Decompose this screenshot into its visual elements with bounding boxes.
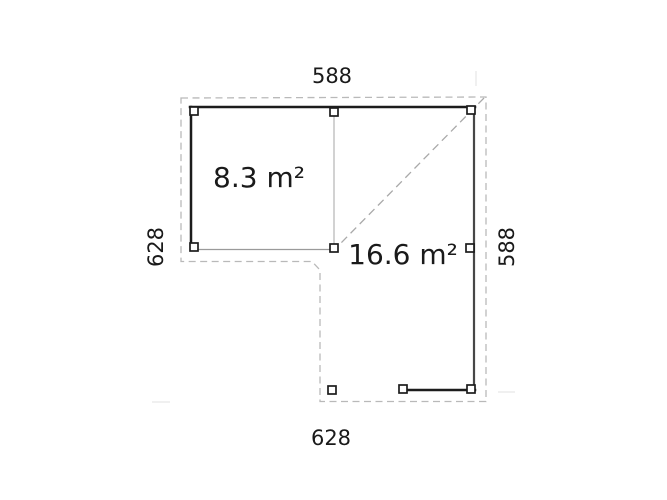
roof-diagonal-line: [339, 98, 484, 245]
post-bottom-middle: [399, 385, 407, 393]
dimension-left: 628: [144, 227, 168, 267]
area-label-right-room: 16.6 m²: [348, 238, 458, 271]
post-bottom-left: [328, 386, 336, 394]
post-top-left: [190, 107, 198, 115]
post-mid-left: [190, 243, 198, 251]
post-mid-right: [466, 244, 474, 252]
dimension-bottom: 628: [311, 426, 351, 450]
dimension-top: 588: [312, 64, 352, 88]
post-bottom-right: [467, 385, 475, 393]
post-top-right: [467, 106, 475, 114]
floor-plan-canvas: 588 628 628 588 8.3 m² 16.6 m²: [0, 0, 667, 500]
area-label-left-room: 8.3 m²: [213, 161, 305, 194]
floor-plan-drawing: 588 628 628 588 8.3 m² 16.6 m²: [0, 0, 667, 500]
post-top-middle: [330, 108, 338, 116]
post-notch-corner: [330, 244, 338, 252]
dimension-right: 588: [495, 227, 519, 267]
